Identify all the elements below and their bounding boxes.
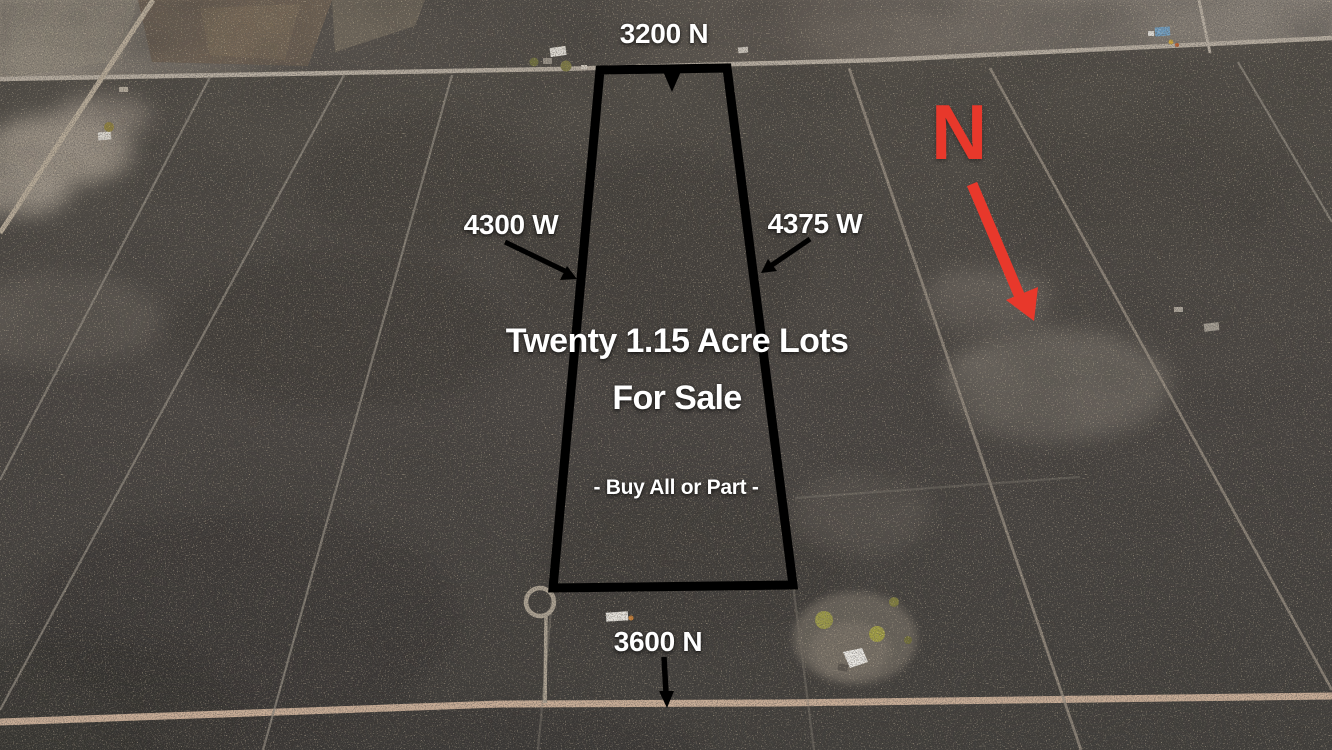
- headline-line1: Twenty 1.15 Acre Lots: [506, 324, 849, 358]
- headline-line2: For Sale: [612, 381, 741, 415]
- street-4375w-arrow-shaft: [772, 239, 810, 265]
- street-label-4300w: 4300 W: [464, 211, 559, 239]
- street-label-4375w: 4375 W: [768, 210, 863, 238]
- street-4300w-arrow-shaft: [505, 242, 565, 271]
- bottom-road-arrow-icon: [659, 691, 674, 708]
- north-arrow-shaft: [972, 184, 1020, 297]
- road-label-3200n: 3200 N: [620, 20, 709, 48]
- north-label: N: [931, 93, 985, 171]
- land-sale-aerial-map: 3200 N 4300 W 4375 W 3600 N Twenty 1.15 …: [0, 0, 1332, 750]
- road-label-3600n: 3600 N: [614, 628, 703, 656]
- bottom-road-arrow-shaft: [664, 657, 666, 693]
- subheadline-buy-all-or-part: - Buy All or Part -: [593, 477, 758, 498]
- top-road-arrow-icon: [662, 69, 682, 92]
